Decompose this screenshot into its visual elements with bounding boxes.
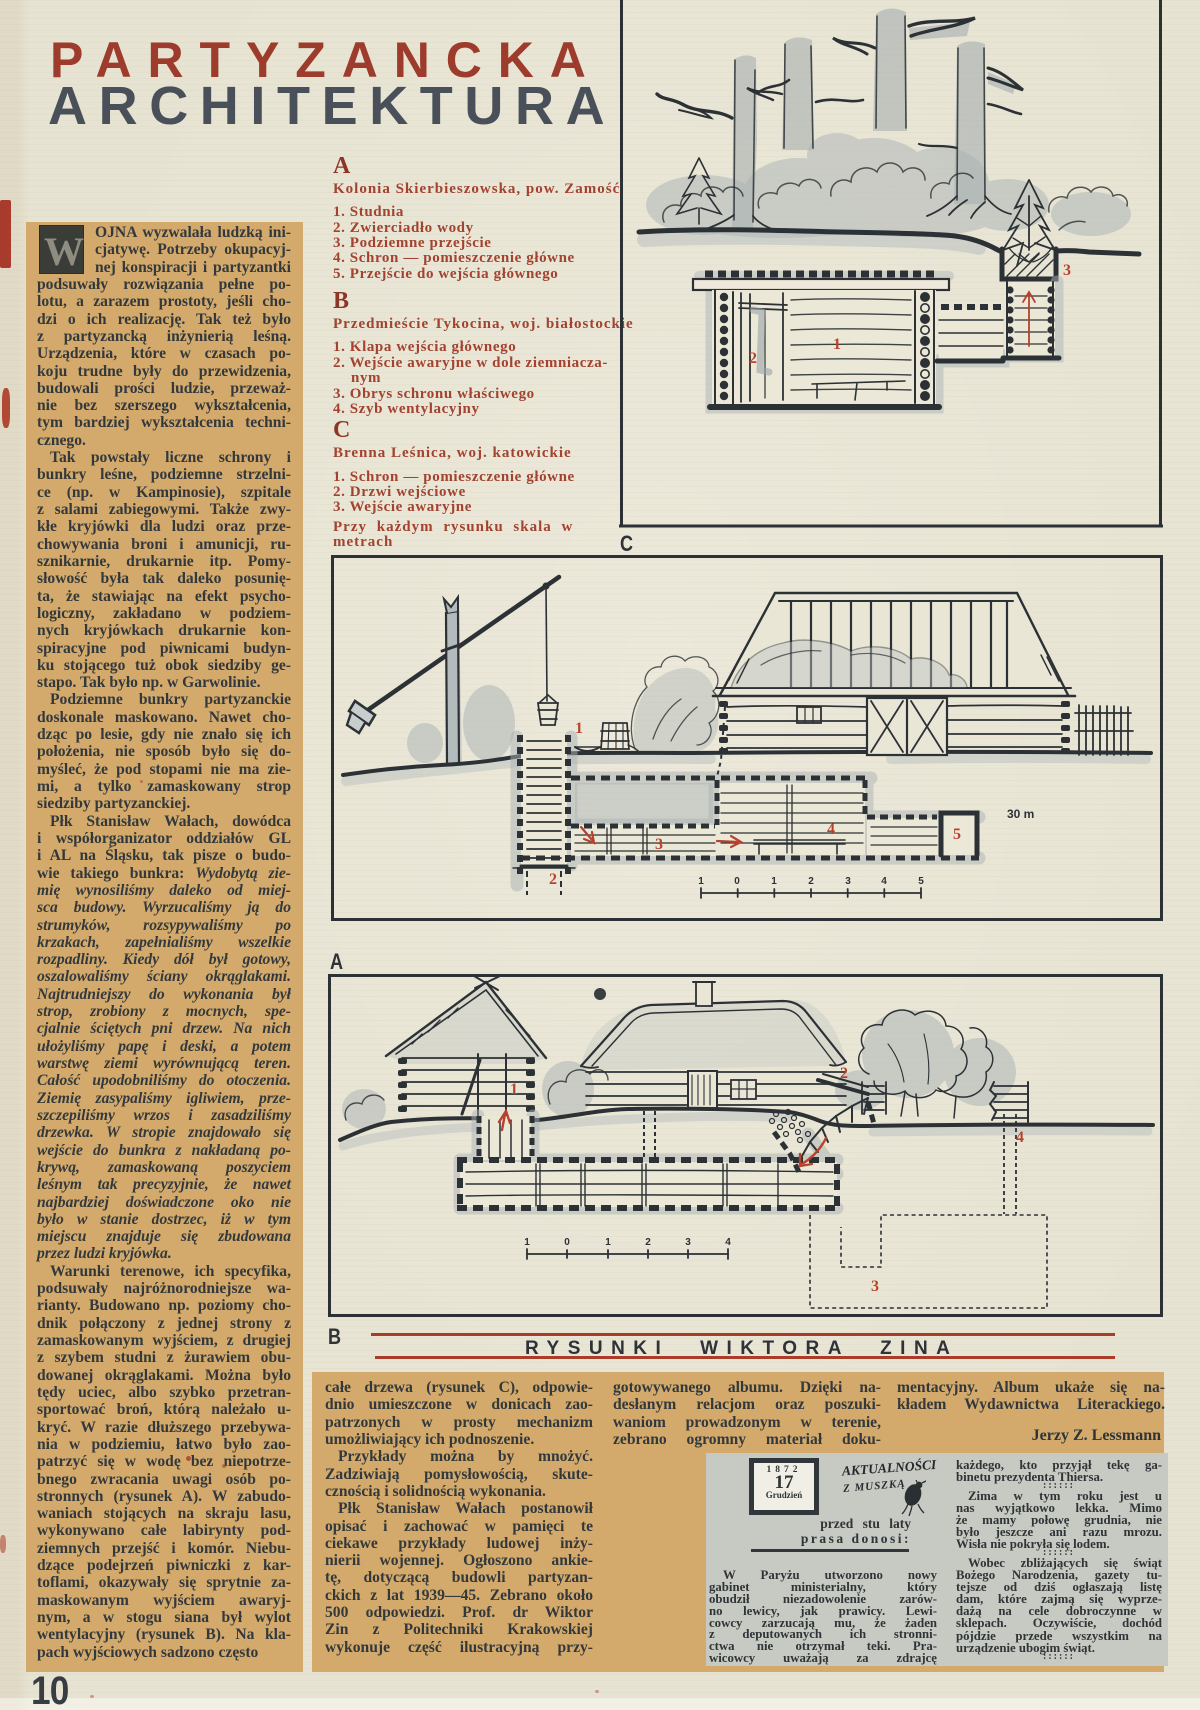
svg-text:0: 0 [734, 876, 740, 887]
svg-text:2: 2 [645, 1237, 651, 1248]
svg-text:1: 1 [605, 1237, 611, 1248]
svg-text:3: 3 [845, 876, 851, 887]
svg-text:3: 3 [655, 836, 663, 853]
svg-text:2: 2 [808, 876, 814, 887]
svg-text:3: 3 [871, 1278, 879, 1295]
svg-text:1: 1 [833, 336, 841, 353]
svg-text:0: 0 [564, 1237, 570, 1248]
svg-text:4: 4 [725, 1237, 731, 1248]
svg-text:1: 1 [510, 1081, 518, 1098]
svg-text:4: 4 [1016, 1129, 1024, 1146]
svg-text:1: 1 [771, 876, 777, 887]
svg-text:3: 3 [685, 1237, 691, 1248]
svg-text:2: 2 [549, 871, 557, 888]
svg-text:1: 1 [698, 876, 704, 887]
svg-text:4: 4 [881, 876, 887, 887]
svg-text:30 m: 30 m [1007, 807, 1034, 821]
svg-text:1: 1 [575, 720, 583, 737]
svg-text:3: 3 [1063, 262, 1071, 279]
svg-text:2: 2 [840, 1065, 848, 1082]
svg-text:1: 1 [524, 1237, 530, 1248]
svg-text:5: 5 [953, 826, 961, 843]
svg-text:4: 4 [827, 821, 835, 838]
svg-text:2: 2 [749, 350, 757, 367]
svg-text:5: 5 [918, 876, 924, 887]
